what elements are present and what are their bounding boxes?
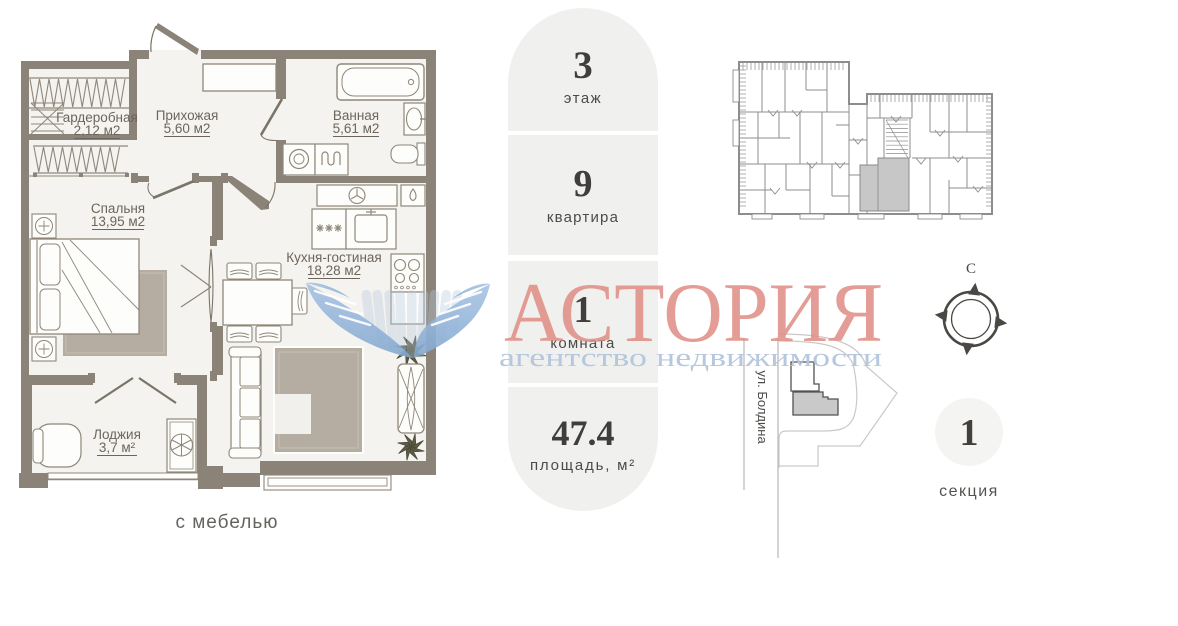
svg-text:площадь, м²: площадь, м²	[530, 457, 636, 474]
svg-text:9: 9	[574, 163, 593, 205]
svg-text:13,95 м2: 13,95 м2	[91, 214, 145, 229]
svg-text:2,12 м2: 2,12 м2	[74, 123, 121, 138]
svg-text:5,60 м2: 5,60 м2	[164, 121, 211, 136]
svg-text:ул. Болдина: ул. Болдина	[755, 370, 770, 444]
svg-text:3,7 м²: 3,7 м²	[99, 440, 136, 455]
svg-text:1: 1	[960, 412, 979, 454]
svg-text:47.4: 47.4	[552, 413, 615, 453]
svg-text:секция: секция	[939, 483, 999, 500]
svg-text:с мебелью: с мебелью	[175, 512, 278, 533]
svg-text:квартира: квартира	[547, 209, 619, 226]
svg-text:этаж: этаж	[564, 90, 602, 107]
svg-text:5,61 м2: 5,61 м2	[333, 121, 380, 136]
svg-text:агентство недвижимости: агентство недвижимости	[499, 343, 882, 372]
svg-text:18,28 м2: 18,28 м2	[307, 263, 361, 278]
svg-text:С: С	[966, 261, 976, 277]
svg-text:3: 3	[573, 44, 593, 87]
